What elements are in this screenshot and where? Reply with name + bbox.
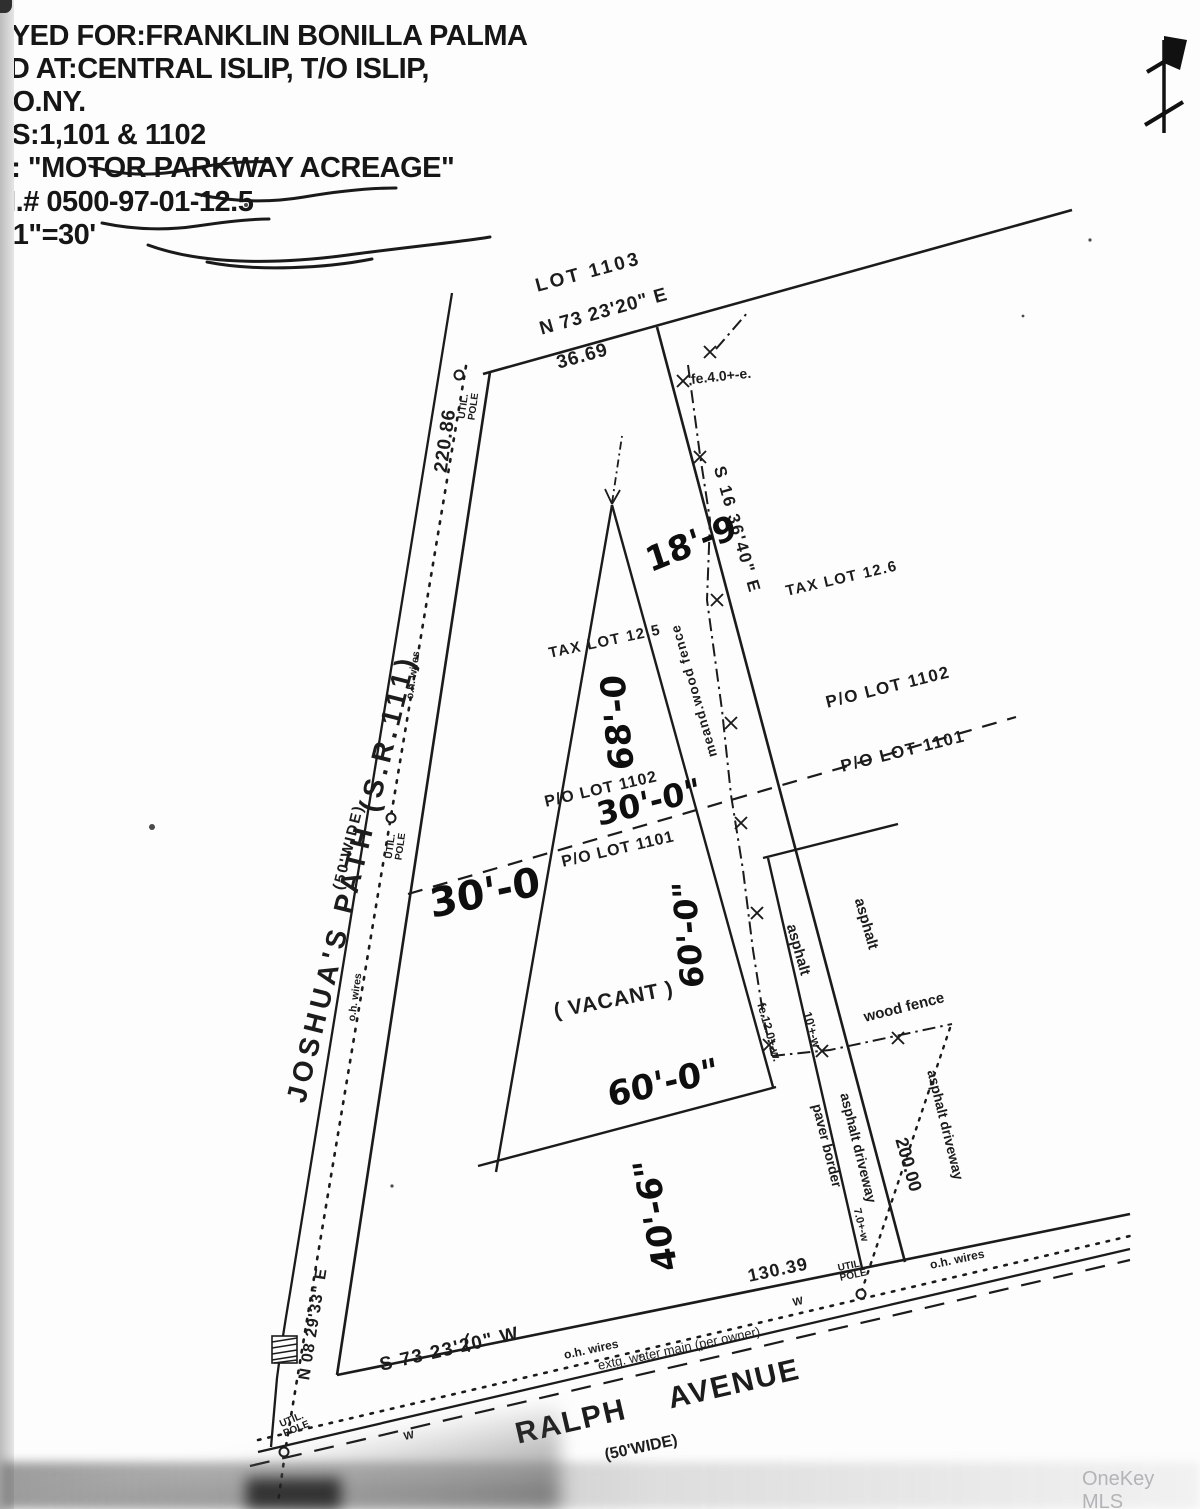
dim-60-0-mid-handwritten: 60'-0" — [668, 882, 709, 989]
dim-68-0-handwritten: 68'-0 — [596, 674, 640, 770]
hatched-box-symbol — [272, 1336, 297, 1363]
header-line-lots: TS:1,101 & 1102 — [0, 121, 206, 150]
utility-pole-symbols — [280, 371, 866, 1457]
property-boundary-lines — [337, 210, 1130, 1375]
header-line-sctm: M.# 0500-97-01-12.5 — [0, 188, 253, 217]
header-line-county: CO.NY. — [0, 88, 86, 117]
north-arrow-icon — [1145, 36, 1187, 133]
header-line-located-at: ED AT:CENTRAL ISLIP, T/O ISLIP, — [0, 55, 429, 84]
util-pole-label-mid: UTIL. POLE — [385, 831, 408, 861]
water-main-mark-2: W — [792, 1296, 804, 1309]
header-line-map-of: F: "MOTOR PARKWAY ACREAGE" — [0, 154, 454, 183]
header-line-surveyed-for: EYED FOR:FRANKLIN BONILLA PALMA — [0, 22, 527, 51]
water-main-mark-1: W — [403, 1430, 415, 1443]
watermark: OneKey MLS — [1082, 1468, 1200, 1509]
survey-linework — [0, 0, 1200, 1509]
apex-leader — [605, 436, 622, 504]
util-pole-label-top: UTIL. POLE — [458, 391, 481, 421]
header-line-scale: : 1"=30' — [0, 221, 96, 250]
pen-scribbles — [90, 162, 490, 1351]
survey-document-page: EYED FOR:FRANKLIN BONILLA PALMA ED AT:CE… — [0, 0, 1200, 1509]
